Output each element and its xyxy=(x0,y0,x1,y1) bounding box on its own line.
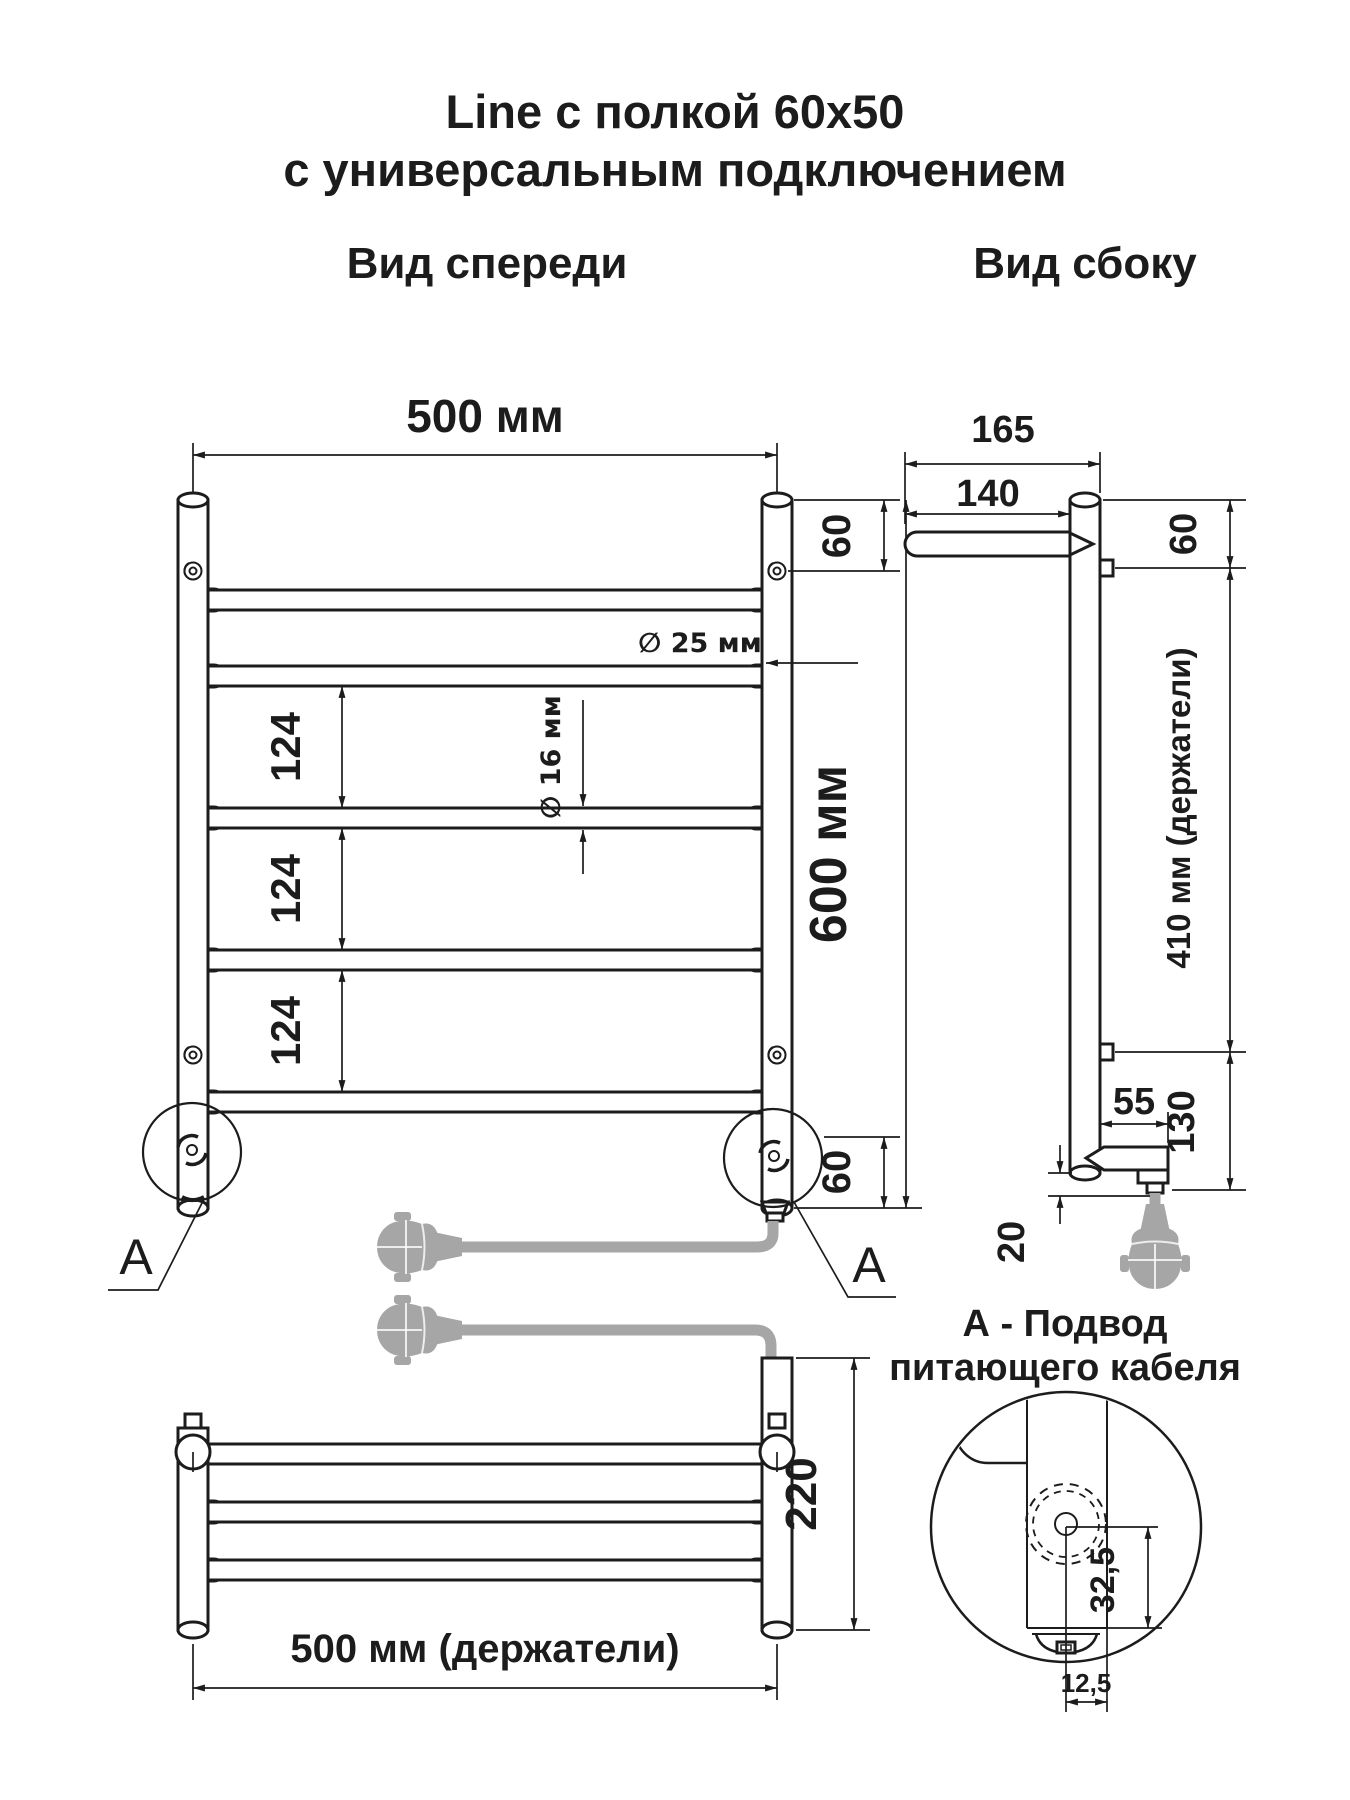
page-title: Line с полкой 60x50 с универсальным подк… xyxy=(283,85,1066,196)
power-plug-icon xyxy=(377,1295,462,1365)
title-line-1: Line с полкой 60x50 xyxy=(446,85,905,138)
dim-total-depth: 165 xyxy=(971,409,1034,451)
power-cable-front xyxy=(377,1212,773,1282)
dim-holders-span: 410 мм (держатели) xyxy=(1160,647,1197,968)
front-left-post xyxy=(178,500,208,1208)
title-line-2: с универсальным подключением xyxy=(283,143,1066,196)
detail-marker-a: А xyxy=(119,1229,153,1285)
holder-pin xyxy=(185,1414,201,1428)
shelf-rails xyxy=(198,1444,772,1581)
shelf-top-view: 220 500 мм (держатели) xyxy=(176,1358,870,1700)
dim-bar-gap-2: 124 xyxy=(262,853,309,924)
side-view-label: Вид сбоку xyxy=(973,239,1197,288)
dim-foot-height: 20 xyxy=(991,1221,1033,1263)
dim-cable-horizontal-offset: 12,5 xyxy=(1061,1668,1112,1698)
side-power-cable xyxy=(1120,1193,1190,1289)
dim-bottom-offset: 60 xyxy=(815,1150,859,1195)
dim-side-top-offset: 60 xyxy=(1163,513,1205,555)
detail-title-1: А - Подвод xyxy=(962,1303,1167,1345)
detail-leader-right: А xyxy=(794,1202,896,1297)
dim-width: 500 мм xyxy=(406,390,564,442)
side-view: 165 140 60 410 мм (держатели) 130 55 20 xyxy=(905,409,1246,1289)
power-plug-icon xyxy=(1120,1204,1190,1289)
dim-bar-diameter: ∅ 16 мм xyxy=(536,695,567,819)
holder-tab-bottom xyxy=(1100,1044,1113,1060)
dim-bar-gap-1: 124 xyxy=(262,711,309,782)
dim-holders-width: 500 мм (держатели) xyxy=(290,1627,679,1671)
power-cable-shelf xyxy=(377,1295,771,1365)
front-dimensions: 500 мм 60 600 мм 60 124 124 124 ∅ 25 мм xyxy=(193,390,922,1208)
detail-title-2: питающего кабеля xyxy=(889,1347,1241,1389)
dim-bar-gap-3: 124 xyxy=(262,995,309,1066)
dim-height: 600 мм xyxy=(800,765,858,943)
dim-shelf-height: 220 xyxy=(777,1457,826,1530)
dim-shelf-depth: 140 xyxy=(956,473,1019,515)
dim-top-offset: 60 xyxy=(815,514,859,559)
dim-bracket-width: 55 xyxy=(1113,1081,1155,1123)
detail-a: А - Подвод питающего кабеля 32,5 12,5 xyxy=(889,1303,1241,1712)
drawing-page: Line с полкой 60x50 с универсальным подк… xyxy=(0,0,1350,1800)
side-shelf-arm xyxy=(905,532,1093,556)
front-view-label: Вид спереди xyxy=(347,239,628,288)
dim-post-diameter: ∅ 25 мм xyxy=(638,628,762,659)
front-right-post xyxy=(762,500,792,1208)
side-post xyxy=(1070,500,1100,1173)
dim-cable-vertical-offset: 32,5 xyxy=(1084,1547,1122,1613)
power-plug-icon xyxy=(377,1212,462,1282)
technical-drawing: Line с полкой 60x50 с универсальным подк… xyxy=(0,0,1350,1800)
holder-tab-top xyxy=(1100,560,1113,576)
detail-marker-a: А xyxy=(852,1237,886,1293)
front-view: А А 500 мм 60 600 мм 60 xyxy=(108,390,922,1365)
holder-pin xyxy=(769,1414,785,1428)
